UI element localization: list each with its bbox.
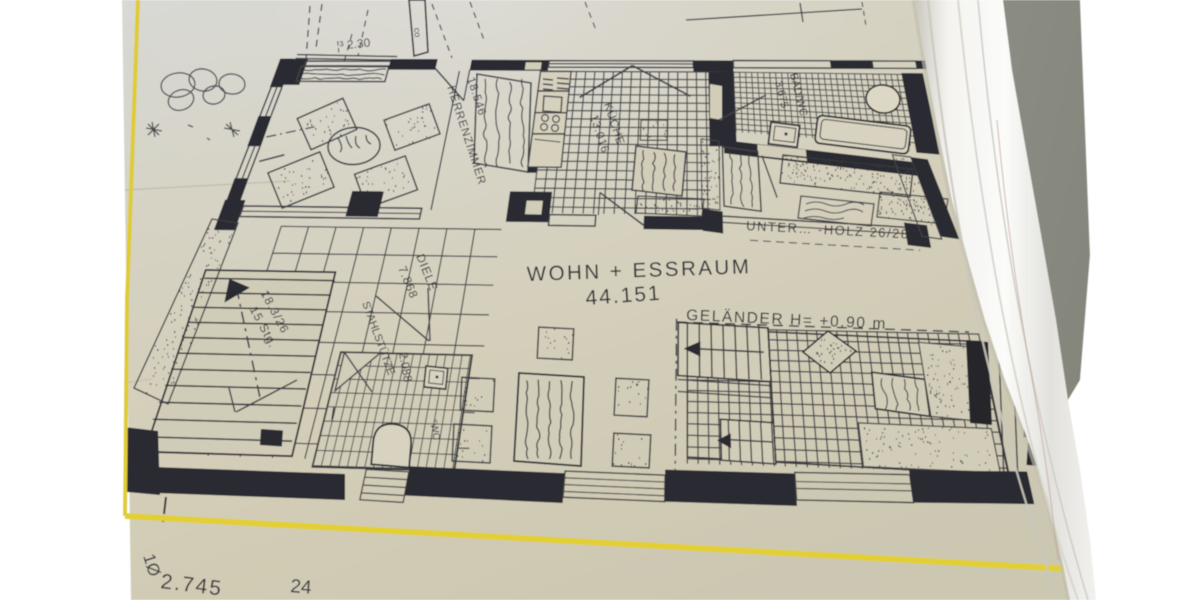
svg-text:co: co [412,27,423,37]
svg-text:24: 24 [290,576,313,599]
